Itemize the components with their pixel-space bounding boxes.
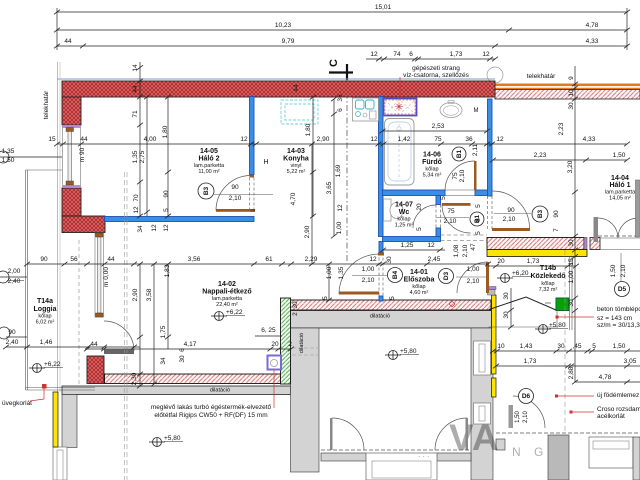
svg-text:1,80: 1,80 (305, 123, 312, 136)
svg-text:14-07: 14-07 (395, 202, 413, 209)
svg-text:30: 30 (292, 301, 299, 309)
svg-text:12: 12 (151, 224, 158, 232)
svg-text:+5,80: +5,80 (164, 435, 181, 442)
svg-text:5: 5 (440, 196, 447, 200)
svg-text:12: 12 (369, 256, 377, 263)
svg-text:2,10: 2,10 (362, 277, 375, 284)
svg-text:+5,80: +5,80 (549, 322, 566, 329)
svg-text:4,78: 4,78 (586, 22, 599, 29)
svg-text:+6,22: +6,22 (226, 309, 243, 316)
svg-text:1,00: 1,00 (326, 266, 333, 279)
svg-text:1,00: 1,00 (568, 270, 575, 283)
svg-text:12: 12 (427, 242, 435, 249)
svg-text:44: 44 (64, 38, 72, 45)
svg-text:2,23: 2,23 (558, 122, 565, 135)
svg-text:30: 30 (568, 239, 575, 247)
svg-text:4,70: 4,70 (290, 192, 297, 205)
svg-text:víz-csatorna, szellőzés: víz-csatorna, szellőzés (403, 72, 469, 79)
svg-text:12: 12 (496, 136, 504, 143)
svg-text:10,23: 10,23 (275, 22, 292, 29)
svg-text:75: 75 (447, 208, 455, 215)
svg-text:1,69: 1,69 (335, 164, 342, 177)
svg-text:70: 70 (133, 194, 140, 202)
svg-text:dilatáció: dilatáció (370, 314, 390, 320)
svg-text:meglévő lakás turbó égéstermék: meglévő lakás turbó égéstermék-elvezető (151, 404, 272, 411)
svg-text:2: 2 (288, 341, 292, 348)
svg-text:12: 12 (240, 136, 248, 143)
svg-text:3,20: 3,20 (567, 160, 574, 173)
svg-text:11,00 m²: 11,00 m² (198, 169, 219, 175)
svg-text:14-04: 14-04 (611, 175, 629, 182)
svg-text:telekhatár: telekhatár (43, 90, 50, 119)
svg-text:2,90: 2,90 (132, 288, 139, 301)
svg-text:1,25 m²: 1,25 m² (395, 223, 414, 229)
svg-text:1,46: 1,46 (40, 339, 53, 346)
svg-text:D3: D3 (443, 271, 450, 280)
svg-text:telekhatár: telekhatár (527, 73, 556, 80)
svg-text:75: 75 (434, 136, 442, 143)
svg-text:4,60 m²: 4,60 m² (410, 290, 429, 296)
svg-text:12: 12 (133, 206, 140, 214)
svg-text:14-06: 14-06 (423, 152, 441, 159)
svg-text:1,35: 1,35 (2, 148, 15, 155)
svg-text:M: M (474, 108, 479, 114)
svg-text:6: 6 (179, 348, 186, 352)
svg-text:5: 5 (389, 296, 396, 300)
svg-text:5: 5 (416, 227, 423, 231)
svg-text:14-01: 14-01 (410, 269, 428, 276)
svg-text:m 90: m 90 (79, 147, 86, 162)
svg-text:előtétfal Rigips CW50 + RF(DF): előtétfal Rigips CW50 + RF(DF) 15 mm (154, 412, 267, 419)
svg-text:B4: B4 (392, 270, 399, 279)
svg-text:1,80: 1,80 (162, 125, 169, 138)
svg-text:+6,22: +6,22 (44, 361, 61, 368)
svg-text:B3: B3 (537, 209, 544, 218)
svg-text:B1: B1 (456, 149, 463, 158)
svg-text:12: 12 (370, 51, 378, 58)
svg-text:4,33: 4,33 (586, 38, 599, 45)
svg-text:30: 30 (503, 292, 510, 300)
svg-text:D5: D5 (618, 286, 627, 293)
svg-text:25: 25 (268, 327, 276, 334)
svg-text:2,40: 2,40 (8, 278, 21, 285)
svg-text:7,32 m²: 7,32 m² (539, 287, 558, 293)
svg-text:34: 34 (160, 357, 167, 365)
svg-text:N G: N G (512, 445, 548, 459)
svg-text:90: 90 (8, 329, 16, 336)
svg-text:H: H (263, 159, 268, 166)
svg-text:90: 90 (163, 190, 170, 198)
svg-text:1,50: 1,50 (515, 411, 521, 423)
svg-text:B3: B3 (203, 186, 210, 195)
svg-text:5,22 m²: 5,22 m² (287, 169, 306, 175)
svg-text:12: 12 (163, 224, 170, 232)
svg-text:1,73: 1,73 (524, 358, 537, 365)
svg-text:10: 10 (568, 89, 575, 97)
svg-text:90: 90 (507, 207, 515, 214)
svg-text:2,10: 2,10 (462, 244, 469, 257)
svg-text:,45: ,45 (572, 343, 581, 350)
svg-text:56: 56 (70, 256, 78, 263)
svg-text:4,33: 4,33 (583, 136, 596, 143)
svg-text:20: 20 (416, 203, 423, 211)
svg-text:2,10: 2,10 (444, 218, 457, 225)
svg-text:5: 5 (475, 231, 482, 235)
svg-text:15: 15 (568, 258, 575, 266)
svg-text:9: 9 (568, 76, 575, 80)
svg-text:30: 30 (568, 102, 575, 110)
svg-text:2,90: 2,90 (317, 136, 330, 143)
svg-text:Croso rozsdamentes: Croso rozsdamentes (597, 406, 640, 413)
svg-text:Fürdő: Fürdő (422, 159, 442, 166)
svg-text:6: 6 (409, 51, 413, 58)
svg-text:4,00: 4,00 (144, 136, 157, 143)
svg-text:Nappali-étkező: Nappali-étkező (202, 289, 251, 296)
svg-text:14-03: 14-03 (287, 148, 305, 155)
svg-text:+6,20: +6,20 (512, 270, 529, 277)
svg-text:2,10: 2,10 (229, 195, 242, 202)
svg-text:8: 8 (475, 218, 482, 222)
svg-text:2,10: 2,10 (620, 264, 627, 277)
svg-text:44: 44 (90, 341, 98, 348)
svg-text:3,65: 3,65 (326, 181, 333, 194)
svg-text:34: 34 (137, 225, 144, 233)
svg-text:+5,80: +5,80 (400, 348, 417, 355)
svg-text:6: 6 (337, 108, 344, 112)
svg-text:7: 7 (553, 228, 560, 232)
svg-text:90: 90 (553, 210, 560, 218)
svg-text:1,73: 1,73 (450, 51, 463, 58)
svg-text:Előszoba: Előszoba (404, 277, 435, 284)
svg-text:1,75: 1,75 (160, 325, 167, 338)
svg-text:1,25: 1,25 (401, 242, 414, 249)
svg-text:...: ... (418, 449, 432, 459)
svg-text:1,00: 1,00 (336, 221, 343, 234)
svg-text:Loggia: Loggia (34, 306, 57, 313)
svg-text:1,35: 1,35 (338, 266, 345, 279)
svg-text:Háló 1: Háló 1 (609, 182, 630, 189)
svg-text:90: 90 (40, 256, 48, 263)
svg-text:1,50: 1,50 (613, 152, 626, 159)
svg-text:sz/m = 30/13,3: sz/m = 30/13,3 (597, 322, 640, 329)
svg-text:üvegkorlát: üvegkorlát (2, 400, 32, 407)
svg-text:30: 30 (179, 355, 186, 363)
svg-text:m 0,00: m 0,00 (103, 267, 110, 287)
svg-text:3,56: 3,56 (188, 256, 201, 263)
svg-text:12: 12 (370, 136, 378, 143)
svg-text:2,00: 2,00 (8, 268, 21, 275)
svg-text:2,40: 2,40 (6, 339, 19, 346)
svg-text:44: 44 (293, 84, 300, 92)
svg-text:1,00: 1,00 (467, 266, 480, 273)
svg-text:új födémlemez: új födémlemez (597, 392, 639, 399)
svg-text:gépészeti strang: gépészeti strang (412, 65, 460, 72)
svg-text:6,02 m²: 6,02 m² (36, 320, 55, 326)
svg-text:10: 10 (497, 343, 505, 350)
svg-text:1,42: 1,42 (398, 136, 411, 143)
svg-text:1,73: 1,73 (527, 258, 540, 265)
svg-text:36: 36 (337, 94, 344, 102)
svg-text:1,35: 1,35 (132, 150, 139, 163)
svg-text:75: 75 (452, 172, 459, 180)
svg-text:1,50: 1,50 (610, 264, 617, 277)
svg-text:C: C (328, 59, 340, 67)
svg-text:2,11: 2,11 (472, 144, 479, 157)
svg-text:1,50: 1,50 (2, 157, 15, 164)
svg-text:2,10: 2,10 (467, 278, 480, 285)
svg-text:15,01: 15,01 (375, 4, 392, 11)
svg-text:D6: D6 (522, 393, 531, 400)
svg-text:Wc: Wc (399, 209, 410, 216)
svg-text:2,75: 2,75 (139, 150, 146, 163)
svg-text:6,: 6, (261, 327, 267, 334)
svg-text:14,05 m²: 14,05 m² (609, 196, 631, 202)
svg-text:2,53: 2,53 (432, 123, 445, 130)
svg-text:T14a: T14a (37, 298, 53, 305)
svg-text:30: 30 (503, 311, 510, 319)
svg-text:36: 36 (465, 136, 473, 143)
svg-text:5: 5 (475, 204, 482, 208)
svg-text:5,34 m²: 5,34 m² (423, 173, 442, 179)
svg-text:12: 12 (482, 51, 490, 58)
svg-text:15: 15 (48, 136, 56, 143)
svg-text:2,30: 2,30 (131, 372, 138, 385)
svg-text:5: 5 (163, 208, 170, 212)
svg-text:90: 90 (231, 184, 239, 191)
svg-text:5: 5 (322, 296, 329, 300)
svg-text:12: 12 (337, 204, 344, 212)
svg-text:1,00: 1,00 (362, 266, 375, 273)
svg-text:74: 74 (393, 51, 401, 58)
svg-text:30: 30 (568, 299, 575, 307)
svg-text:Háló 2: Háló 2 (198, 156, 219, 163)
svg-text:sz = 143 cm: sz = 143 cm (597, 315, 632, 322)
svg-text:4,78: 4,78 (599, 374, 612, 381)
svg-text:22,40 m²: 22,40 m² (216, 302, 238, 308)
svg-text:2,10: 2,10 (503, 216, 516, 223)
svg-text:Konyha: Konyha (283, 156, 309, 163)
svg-text:2,90: 2,90 (304, 225, 311, 238)
svg-text:dilatáció: dilatáció (299, 333, 305, 353)
svg-text:2,29: 2,29 (305, 256, 318, 263)
svg-text:9,79: 9,79 (282, 38, 295, 45)
svg-text:44: 44 (132, 85, 139, 93)
svg-text:dilatáció: dilatáció (210, 388, 230, 394)
svg-text:2,10: 2,10 (459, 169, 466, 182)
svg-text:2: 2 (292, 312, 299, 316)
svg-text:T14b: T14b (540, 265, 556, 272)
svg-text:44: 44 (107, 256, 115, 263)
svg-text:Közlekedő: Közlekedő (530, 273, 565, 280)
svg-text:acélkorlát: acélkorlát (597, 413, 625, 420)
svg-text:1,08: 1,08 (453, 244, 460, 257)
svg-text:beton tömblépcső: beton tömblépcső (597, 306, 640, 313)
svg-text:3,58: 3,58 (146, 288, 153, 301)
svg-text:2,10: 2,10 (523, 411, 529, 423)
svg-text:30: 30 (386, 256, 393, 264)
svg-text:1,50: 1,50 (613, 343, 626, 350)
svg-text:2,88: 2,88 (568, 366, 575, 379)
svg-text:4,17: 4,17 (184, 341, 197, 348)
svg-text:61: 61 (265, 256, 273, 263)
svg-text:14-02: 14-02 (218, 281, 236, 288)
svg-text:2,23: 2,23 (534, 152, 547, 159)
svg-text:1,43: 1,43 (520, 343, 533, 350)
svg-text:71: 71 (132, 110, 139, 118)
svg-text:VA: VA (449, 417, 500, 458)
svg-text:14: 14 (132, 64, 139, 72)
svg-text:47: 47 (470, 243, 477, 251)
svg-text:14-05: 14-05 (200, 148, 218, 155)
